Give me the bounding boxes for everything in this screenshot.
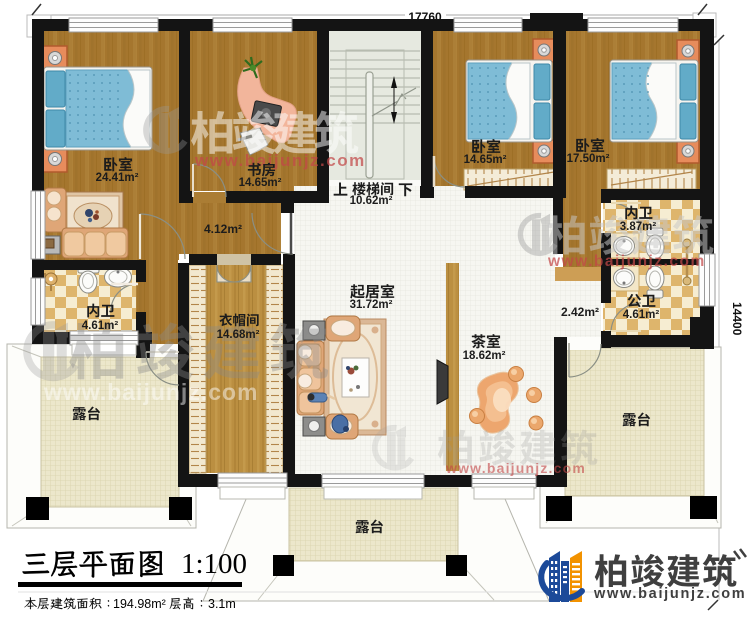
svg-text:14400: 14400 — [730, 302, 744, 336]
svg-text:4.61m²: 4.61m² — [623, 309, 660, 321]
svg-text:www.baijunjz.com: www.baijunjz.com — [194, 151, 366, 170]
svg-text:10.62m²: 10.62m² — [350, 195, 393, 207]
svg-text:www.baijunjz.com: www.baijunjz.com — [547, 253, 706, 270]
svg-text:194.98m²: 194.98m² — [113, 597, 166, 611]
svg-text:3.87m²: 3.87m² — [620, 221, 657, 233]
svg-text:24.41m²: 24.41m² — [96, 172, 139, 184]
svg-text:14.65m²: 14.65m² — [239, 177, 282, 189]
svg-text:4.61m²: 4.61m² — [82, 320, 119, 332]
svg-text:1:100: 1:100 — [181, 548, 247, 580]
svg-text:2.42m²: 2.42m² — [561, 305, 599, 319]
svg-text:31.72m²: 31.72m² — [350, 299, 393, 311]
svg-text:4.12m²: 4.12m² — [204, 222, 242, 236]
svg-text:14.68m²: 14.68m² — [217, 329, 260, 341]
svg-text:www.baijunjz.com: www.baijunjz.com — [43, 379, 259, 405]
svg-text:www.baijunjz.com: www.baijunjz.com — [445, 460, 586, 476]
svg-text:14.65m²: 14.65m² — [464, 154, 507, 166]
svg-text:17.50m²: 17.50m² — [567, 153, 610, 165]
svg-text:18.62m²: 18.62m² — [463, 350, 506, 362]
svg-text:3.1m: 3.1m — [208, 597, 236, 611]
svg-text:www.baijunjz.com: www.baijunjz.com — [593, 586, 746, 602]
